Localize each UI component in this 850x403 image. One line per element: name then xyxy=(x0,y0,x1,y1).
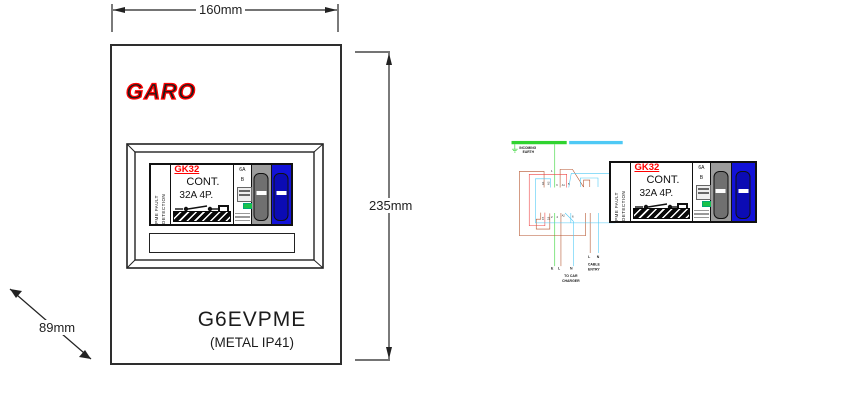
pme-text-1: PME FAULT xyxy=(154,165,160,224)
blue-breaker-toggle xyxy=(274,173,289,221)
mcb-curve: B xyxy=(234,175,251,185)
terminal-18: 18 xyxy=(546,216,550,220)
gray-breaker xyxy=(252,165,271,224)
to-car-charger-2: CHARGER xyxy=(562,279,580,283)
contactor-module: GK32 CONT. 32A 4P. xyxy=(171,165,232,224)
mcb-module: 6A B xyxy=(233,165,252,224)
to-car-charger-1: TO CAR xyxy=(564,274,578,278)
pme-text-1: PME FAULT xyxy=(614,163,620,221)
cable-n-label: N xyxy=(597,255,600,259)
terminal-3: 3 xyxy=(556,183,558,187)
mcb-curve: B xyxy=(693,173,711,183)
gray-breaker-toggle xyxy=(254,173,269,221)
device-assembly: PME FAULT DETECTION GK32 CONT. 32A 4P. 6… xyxy=(149,163,293,226)
cable-entry-2: ENTRY xyxy=(588,268,600,272)
pme-fault-module: PME FAULT DETECTION xyxy=(611,163,631,221)
blue-breaker xyxy=(732,163,755,221)
blank-label-strip xyxy=(149,233,295,253)
terminal-a1-coil: A1 xyxy=(562,184,566,187)
hatched-bar xyxy=(633,208,689,219)
incoming-earth-label-1: INCOMING xyxy=(519,146,536,150)
wiring-device-assembly: PME FAULT DETECTION GK32 CONT. 32A 4P. 6… xyxy=(609,161,757,223)
contactor-model: GK32 xyxy=(634,162,659,173)
depth-dimension-label: 89mm xyxy=(36,320,78,335)
width-dimension-label: 160mm xyxy=(196,2,245,17)
out-l-label: L xyxy=(558,266,561,270)
mcb-rating: 6A xyxy=(693,163,711,173)
contactor-rating: 32A 4P. xyxy=(179,190,213,201)
model-name: G6EVPME xyxy=(162,308,342,332)
mcb-terminal-icon xyxy=(696,185,711,200)
contactor-rating: 32A 4P. xyxy=(639,188,673,199)
terminal-a2-coil: A2 xyxy=(562,214,566,217)
gray-breaker xyxy=(711,163,731,221)
cable-l-label: L xyxy=(588,255,591,259)
height-dimension-label: 235mm xyxy=(366,198,415,213)
cable-entry-1: CABLE xyxy=(588,263,601,267)
terminal-15: 15 xyxy=(541,216,545,220)
terminal-6: 6 xyxy=(572,215,574,219)
pme-fault-module: PME FAULT DETECTION xyxy=(151,165,171,224)
mcb-rating: 6A xyxy=(234,165,251,175)
contactor-type: CONT. xyxy=(646,174,679,186)
contactor-model: GK32 xyxy=(174,164,199,175)
ground-symbol xyxy=(512,144,518,152)
gray-breaker-toggle xyxy=(713,171,728,219)
garo-logo: GARO xyxy=(124,74,196,108)
terminal-a2-top: A2 xyxy=(546,181,550,185)
model-spec: (METAL IP41) xyxy=(162,335,342,350)
blue-breaker-toggle xyxy=(736,171,751,219)
out-e-label: E xyxy=(551,266,554,270)
incoming-earth-label-2: EARTH xyxy=(523,150,535,154)
hatched-bar xyxy=(173,211,230,222)
terminal-4: 4 xyxy=(556,215,558,219)
terminal-a1-top: A1 xyxy=(541,181,545,185)
page: 160mm GARO PME FAULT DETECTION GK32 CONT… xyxy=(0,0,850,403)
contactor-type: CONT. xyxy=(186,176,219,188)
contactor-module: GK32 CONT. 32A 4P. xyxy=(631,163,691,221)
mcb-stripes xyxy=(234,211,251,222)
earth-bar xyxy=(512,141,567,144)
out-n-label: N xyxy=(570,266,573,270)
mcb-stripes xyxy=(693,208,711,219)
terminal-2: 2 xyxy=(551,215,553,219)
terminal-1: 1 xyxy=(551,169,553,173)
neutral-bar xyxy=(569,141,623,144)
pme-text-2: DETECTION xyxy=(621,163,627,221)
svg-text:GARO: GARO xyxy=(126,79,196,104)
mcb-module: 6A B xyxy=(692,163,712,221)
mcb-terminal-icon xyxy=(237,187,252,202)
blue-breaker xyxy=(272,165,291,224)
mcb-green-indicator xyxy=(702,201,712,207)
pme-text-2: DETECTION xyxy=(161,165,167,224)
